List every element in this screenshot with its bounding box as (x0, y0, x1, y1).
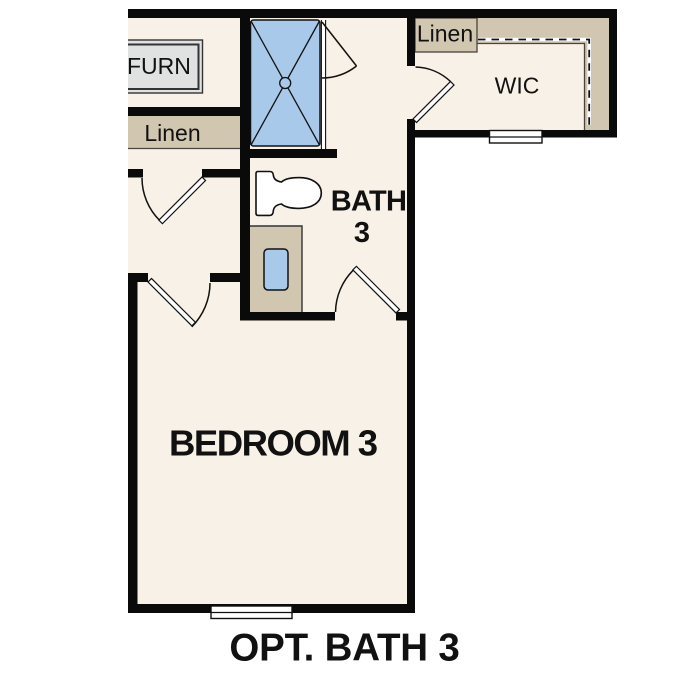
svg-text:WIC: WIC (495, 73, 540, 99)
svg-text:BEDROOM 3: BEDROOM 3 (169, 423, 377, 464)
svg-text:Linen: Linen (417, 21, 473, 47)
svg-text:Linen: Linen (144, 120, 200, 146)
svg-text:FURN: FURN (127, 53, 191, 79)
svg-text:3: 3 (354, 217, 370, 249)
svg-text:BATH: BATH (331, 185, 406, 217)
svg-text:OPT. BATH 3: OPT. BATH 3 (229, 627, 459, 670)
